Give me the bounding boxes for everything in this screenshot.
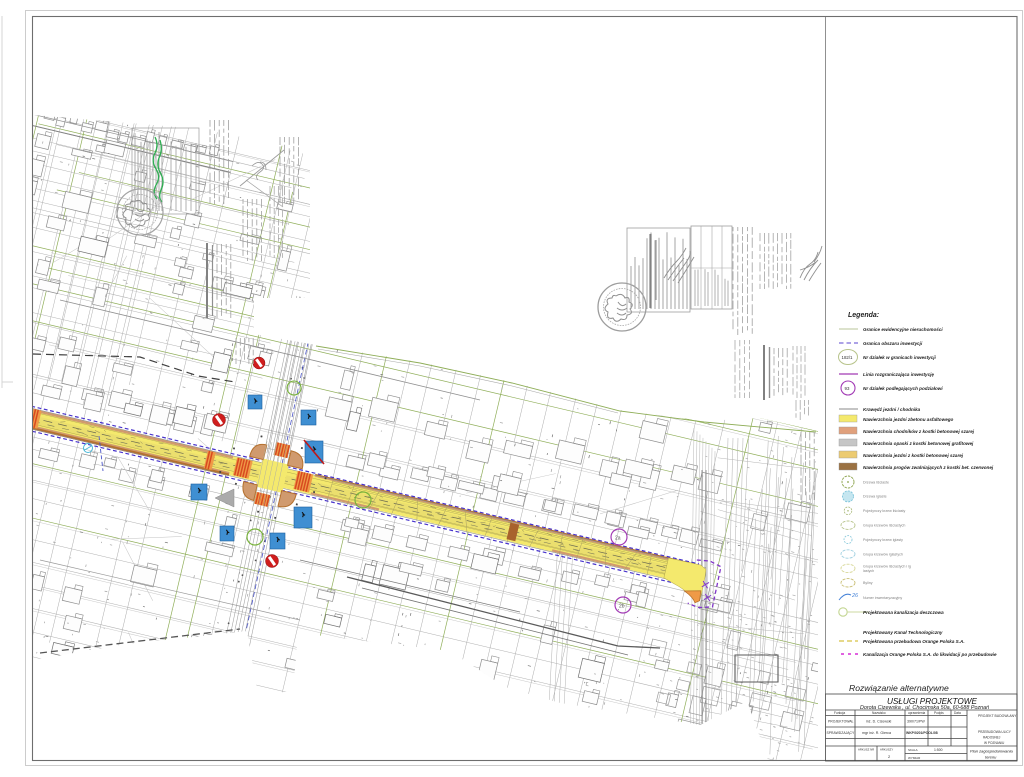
svg-text:Nawierzchnia chodników z kostk: Nawierzchnia chodników z kostki betonowe… xyxy=(863,429,975,434)
svg-text:terenu: terenu xyxy=(985,755,997,760)
svg-text:PROJEKT BUDOWLANY: PROJEKT BUDOWLANY xyxy=(978,714,1017,718)
svg-text:inż. D. Cizewski: inż. D. Cizewski xyxy=(866,720,892,724)
svg-text:ARKUSZY: ARKUSZY xyxy=(880,748,893,752)
svg-text:mgr inż. R. Gierca: mgr inż. R. Gierca xyxy=(862,731,891,735)
svg-text:1:500: 1:500 xyxy=(934,748,943,752)
svg-text:SKALA: SKALA xyxy=(908,748,918,752)
svg-text:W POZNANIU: W POZNANIU xyxy=(984,741,1005,745)
svg-text:Nr działek w granicach inwesty: Nr działek w granicach inwestycji xyxy=(863,355,936,360)
svg-text:Projektowany Kanał Technologic: Projektowany Kanał Technologiczny xyxy=(863,630,943,635)
svg-text:Nawierzchnia jezdni z kostki b: Nawierzchnia jezdni z kostki betonowej s… xyxy=(863,453,964,458)
svg-text:lastych: lastych xyxy=(863,569,874,573)
svg-text:2b: 2b xyxy=(619,604,625,610)
svg-text:Grupa krzewów liściastych: Grupa krzewów liściastych xyxy=(863,524,905,528)
svg-text:uprawnienia: uprawnienia xyxy=(908,711,925,715)
svg-text:Nawierzchnia progów zwalniając: Nawierzchnia progów zwalniających z kost… xyxy=(863,465,994,470)
svg-text:26: 26 xyxy=(851,593,859,599)
svg-text:Nr działek podlegających podzi: Nr działek podlegających podziałowi xyxy=(863,386,943,391)
svg-text:Legenda:: Legenda: xyxy=(848,312,879,319)
svg-text:Plan zagospodarowania: Plan zagospodarowania xyxy=(970,749,1013,754)
svg-text:Nazwisko: Nazwisko xyxy=(872,711,886,715)
svg-text:Linia rozgraniczająca inwestyc: Linia rozgraniczająca inwestycję xyxy=(863,372,934,377)
svg-text:Data: Data xyxy=(954,711,961,715)
svg-text:Projektowana kanalizacja deszc: Projektowana kanalizacja deszczowa xyxy=(863,610,944,615)
svg-text:2a: 2a xyxy=(615,536,621,542)
svg-text:Rozwiązanie alternatywne: Rozwiązanie alternatywne xyxy=(849,683,949,693)
svg-text:Pojedynczy krzew liściasty: Pojedynczy krzew liściasty xyxy=(863,509,906,513)
svg-text:WYMIAR: WYMIAR xyxy=(908,756,921,760)
svg-text:Projektowana przebudowa Orange: Projektowana przebudowa Orange Polska S.… xyxy=(863,639,965,644)
svg-text:Drzewa liściaste: Drzewa liściaste xyxy=(863,480,889,484)
svg-text:Grupa krzewów iglastych: Grupa krzewów iglastych xyxy=(863,552,903,556)
svg-text:Numer inwentaryzacyjny: Numer inwentaryzacyjny xyxy=(863,596,902,600)
svg-text:PROJEKTOWAŁ: PROJEKTOWAŁ xyxy=(828,720,854,724)
svg-text:390/71/PW: 390/71/PW xyxy=(907,720,925,724)
svg-text:182/1: 182/1 xyxy=(842,355,854,360)
svg-text:Pojedynczy krzew iglasty: Pojedynczy krzew iglasty xyxy=(863,538,903,542)
svg-text:RADOSNEJ: RADOSNEJ xyxy=(983,736,1001,740)
svg-text:PRZEBUDOWA ULICY: PRZEBUDOWA ULICY xyxy=(978,730,1012,734)
svg-text:Podpis: Podpis xyxy=(934,711,944,715)
svg-text:WKP/0201/POOL/08: WKP/0201/POOL/08 xyxy=(906,731,938,735)
svg-text:Granica obszaru inwestycji: Granica obszaru inwestycji xyxy=(863,341,923,346)
svg-text:Granice ewidencyjne nieruchomo: Granice ewidencyjne nieruchomości xyxy=(863,327,943,332)
svg-text:SPRAWDZAJĄCY: SPRAWDZAJĄCY xyxy=(827,731,855,735)
svg-text:Grupa krzewów liściastych i ig: Grupa krzewów liściastych i ig xyxy=(863,564,911,568)
svg-text:Kanalizacja Orange Polska S.A.: Kanalizacja Orange Polska S.A. do likwid… xyxy=(863,652,997,657)
svg-text:Nawierzchnia opaski z kostki b: Nawierzchnia opaski z kostki betonowej g… xyxy=(863,441,974,446)
svg-text:Krawędź jezdni / chodnika: Krawędź jezdni / chodnika xyxy=(863,407,921,412)
svg-text:93: 93 xyxy=(845,386,850,391)
svg-text:Funkcja: Funkcja xyxy=(834,711,845,715)
svg-text:ARKUSZ NR: ARKUSZ NR xyxy=(858,748,874,752)
svg-text:Nawierzchnia jezdni zbetonu as: Nawierzchnia jezdni zbetonu asfaltowego xyxy=(863,417,954,422)
svg-text:Byliny: Byliny xyxy=(863,581,873,585)
svg-text:Drzewa iglaste: Drzewa iglaste xyxy=(863,495,887,499)
